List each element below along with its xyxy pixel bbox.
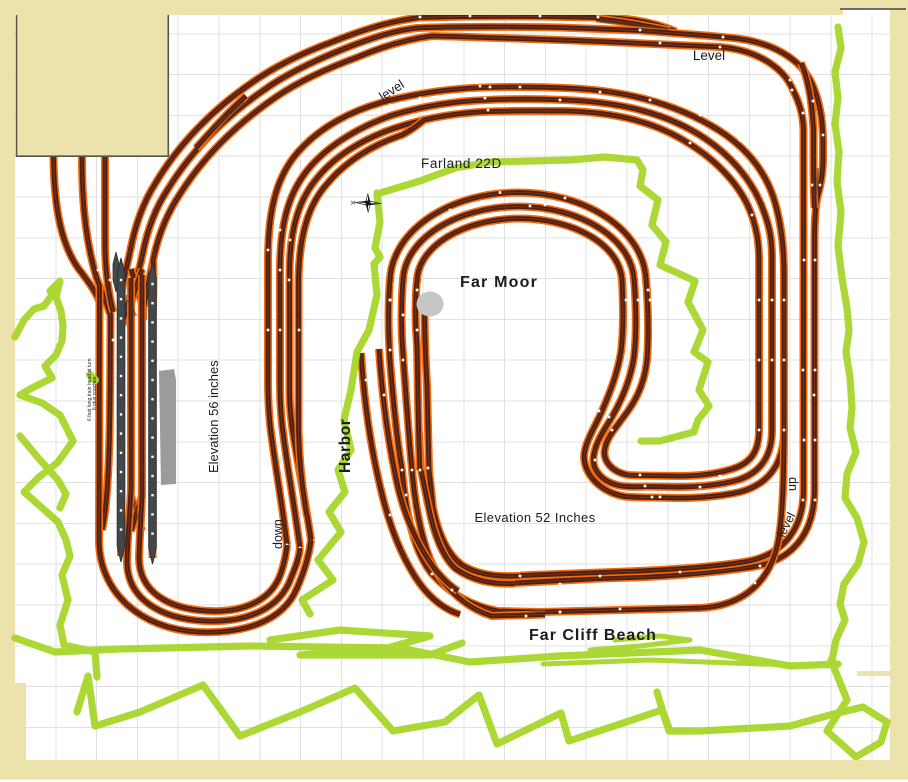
svg-text:Harbor: Harbor bbox=[337, 419, 354, 473]
svg-text:Elevation 56 inches: Elevation 56 inches bbox=[206, 360, 221, 473]
svg-text:Farland 22D: Farland 22D bbox=[421, 156, 502, 171]
svg-text:down: down bbox=[271, 519, 285, 549]
svg-text:Far Moor: Far Moor bbox=[460, 274, 538, 291]
svg-text:Far Cliff Beach: Far Cliff Beach bbox=[529, 627, 657, 644]
svg-text:Level: Level bbox=[693, 48, 725, 63]
svg-text:up: up bbox=[785, 477, 799, 491]
svg-text:Elevation 52 Inches: Elevation 52 Inches bbox=[474, 510, 595, 525]
svg-text:6 plus coaches: 6 plus coaches bbox=[92, 376, 98, 410]
